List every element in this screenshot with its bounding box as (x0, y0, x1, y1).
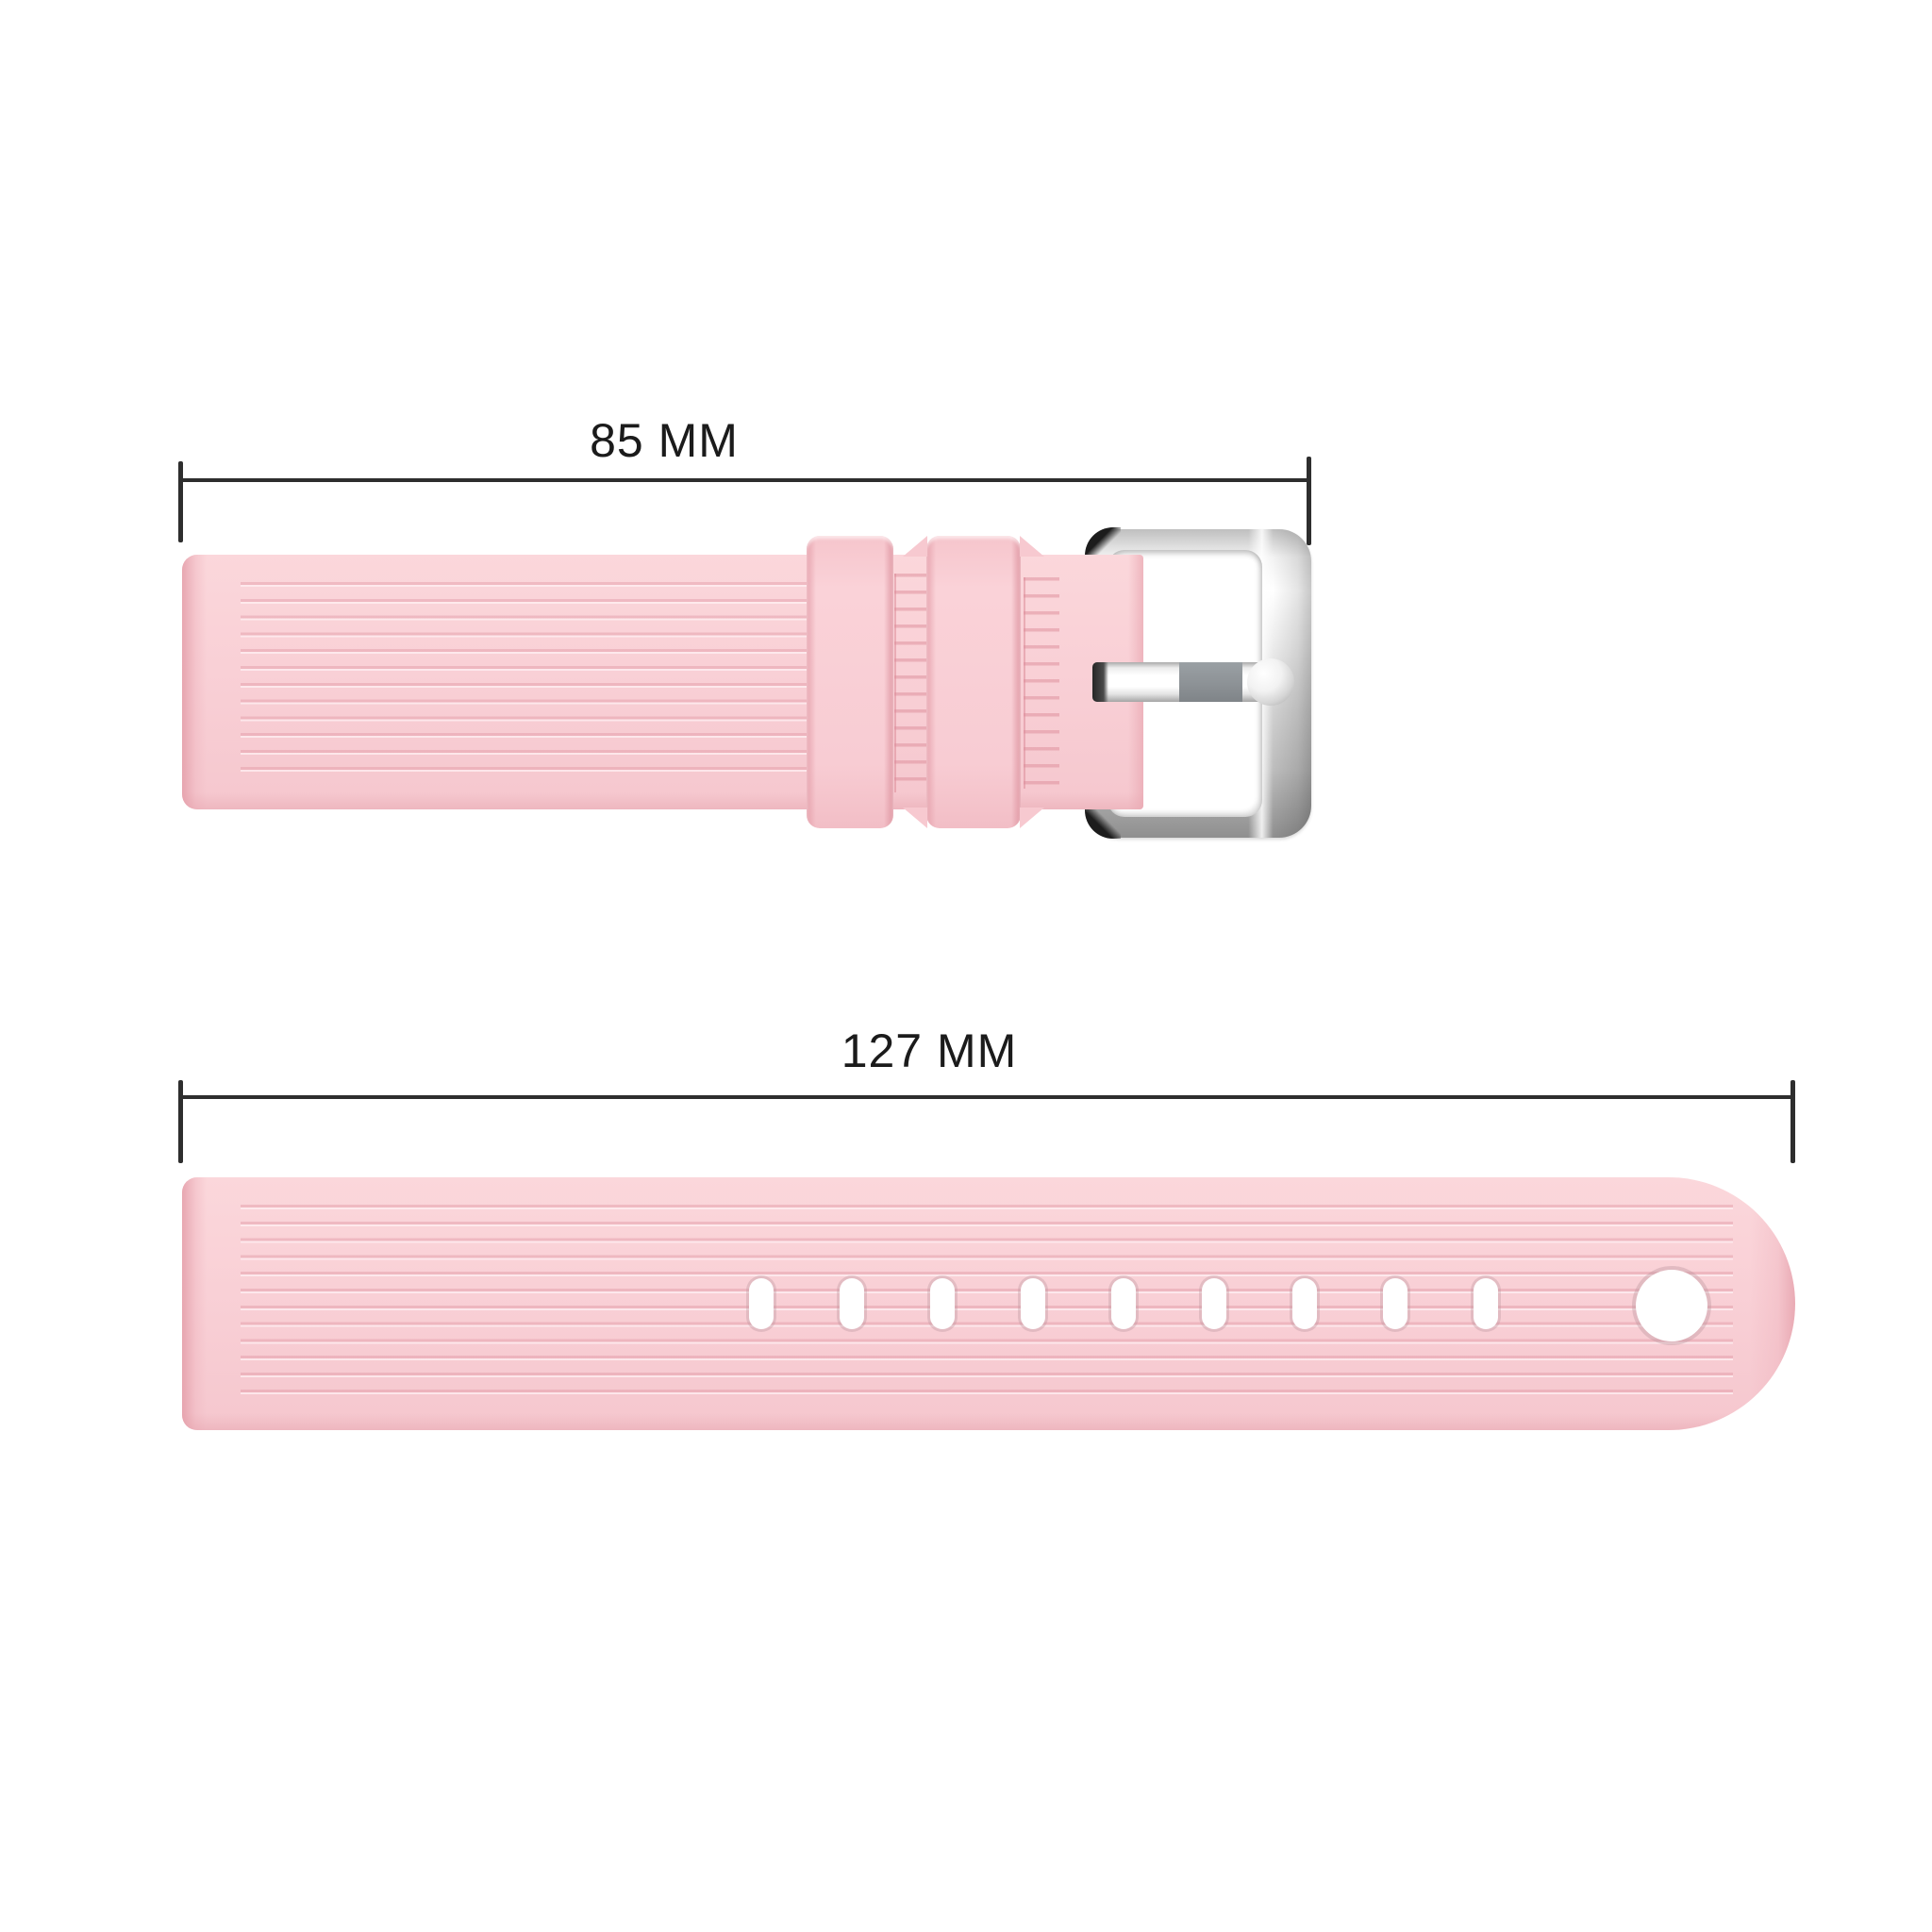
buckle-corner-bottom-left (1085, 808, 1121, 839)
strap-adjustment-hole (1202, 1278, 1226, 1329)
buckle-tongue-hole (1636, 1270, 1707, 1341)
bottom-dimension-line (180, 1095, 1794, 1099)
keeper-chamfer-top-right (1020, 536, 1044, 557)
strap-adjustment-hole (749, 1278, 774, 1329)
top-measurement-label: 85 MM (475, 413, 853, 468)
strap-ridge-texture (241, 1205, 1733, 1406)
buckle-prong-tip (1247, 658, 1294, 706)
strap-left-edge-shading (182, 555, 207, 809)
top-dimension-tick-left (178, 461, 183, 542)
bottom-dimension-tick-right (1790, 1080, 1795, 1163)
buckle-corner-top-left (1085, 527, 1121, 558)
bottom-dimension-tick-left (178, 1080, 183, 1163)
strap-adjustment-hole (1474, 1278, 1498, 1329)
keeper-chamfer-top-left (903, 536, 927, 557)
product-dimension-diagram: 85 MM 127 MM (0, 0, 1932, 1932)
strap-adjustment-hole (1021, 1278, 1045, 1329)
strap-bottom-edge-shading (182, 1413, 1795, 1430)
strap-adjustment-hole (1383, 1278, 1407, 1329)
buckle-prong-hinge (1092, 662, 1108, 702)
buckle-prong (1092, 662, 1262, 702)
keeper-chamfer-bottom-right (1020, 808, 1044, 828)
bottom-measurement-label: 127 MM (741, 1024, 1118, 1078)
strap-groove-band-near-buckle (1024, 577, 1059, 789)
strap-ridge-texture (241, 582, 812, 783)
keeper-chamfer-bottom-left (903, 808, 927, 828)
strap-adjustment-hole (1111, 1278, 1136, 1329)
top-dimension-line (180, 478, 1309, 482)
strap-adjustment-hole (1292, 1278, 1317, 1329)
fixed-keeper-loop (807, 536, 893, 828)
top-dimension-tick-right (1307, 457, 1311, 545)
holes-strap-body (182, 1177, 1795, 1430)
buckle-prong-gray-segment (1179, 662, 1242, 702)
strap-adjustment-hole (930, 1278, 955, 1329)
strap-adjustment-hole (840, 1278, 864, 1329)
sliding-keeper-loop (926, 536, 1021, 828)
